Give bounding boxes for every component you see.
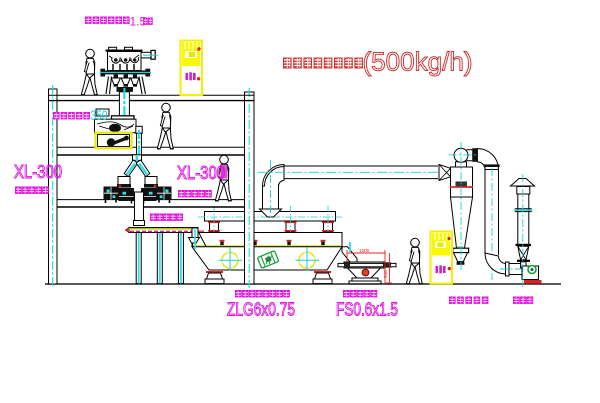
svg-text:1500: 1500 (359, 248, 370, 253)
svg-text:540: 540 (383, 270, 388, 278)
svg-text:FS0.6x1.5: FS0.6x1.5 (336, 300, 398, 320)
svg-text:(500kg/h): (500kg/h) (363, 47, 473, 77)
svg-text:350: 350 (91, 107, 108, 123)
svg-text:ZLG6x0.75: ZLG6x0.75 (227, 300, 295, 320)
svg-text:XL-300: XL-300 (14, 161, 62, 182)
svg-text:XL-300: XL-300 (177, 162, 225, 183)
